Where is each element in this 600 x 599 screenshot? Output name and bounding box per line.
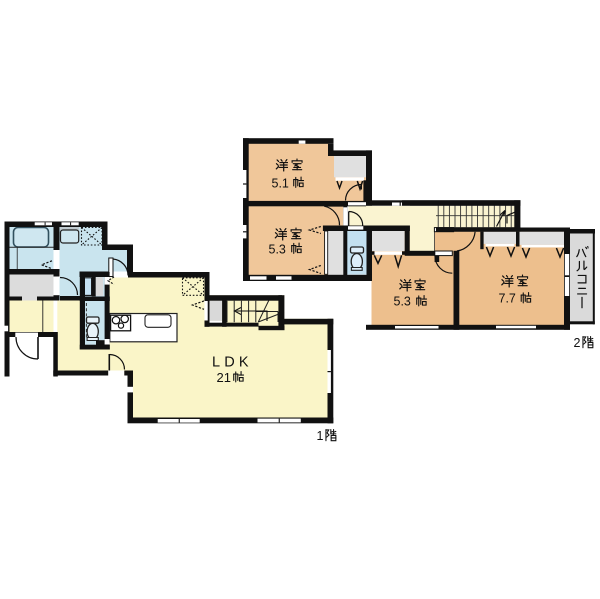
svg-text:1: 1 [317, 429, 324, 443]
svg-text:5.1: 5.1 [272, 177, 289, 191]
svg-text:2: 2 [574, 336, 581, 350]
svg-text:7.7: 7.7 [499, 292, 516, 306]
svg-text:5.3: 5.3 [269, 243, 286, 257]
svg-text:5.3: 5.3 [394, 295, 411, 309]
svg-text:21: 21 [217, 370, 231, 385]
svg-text:LDK: LDK [212, 355, 253, 371]
